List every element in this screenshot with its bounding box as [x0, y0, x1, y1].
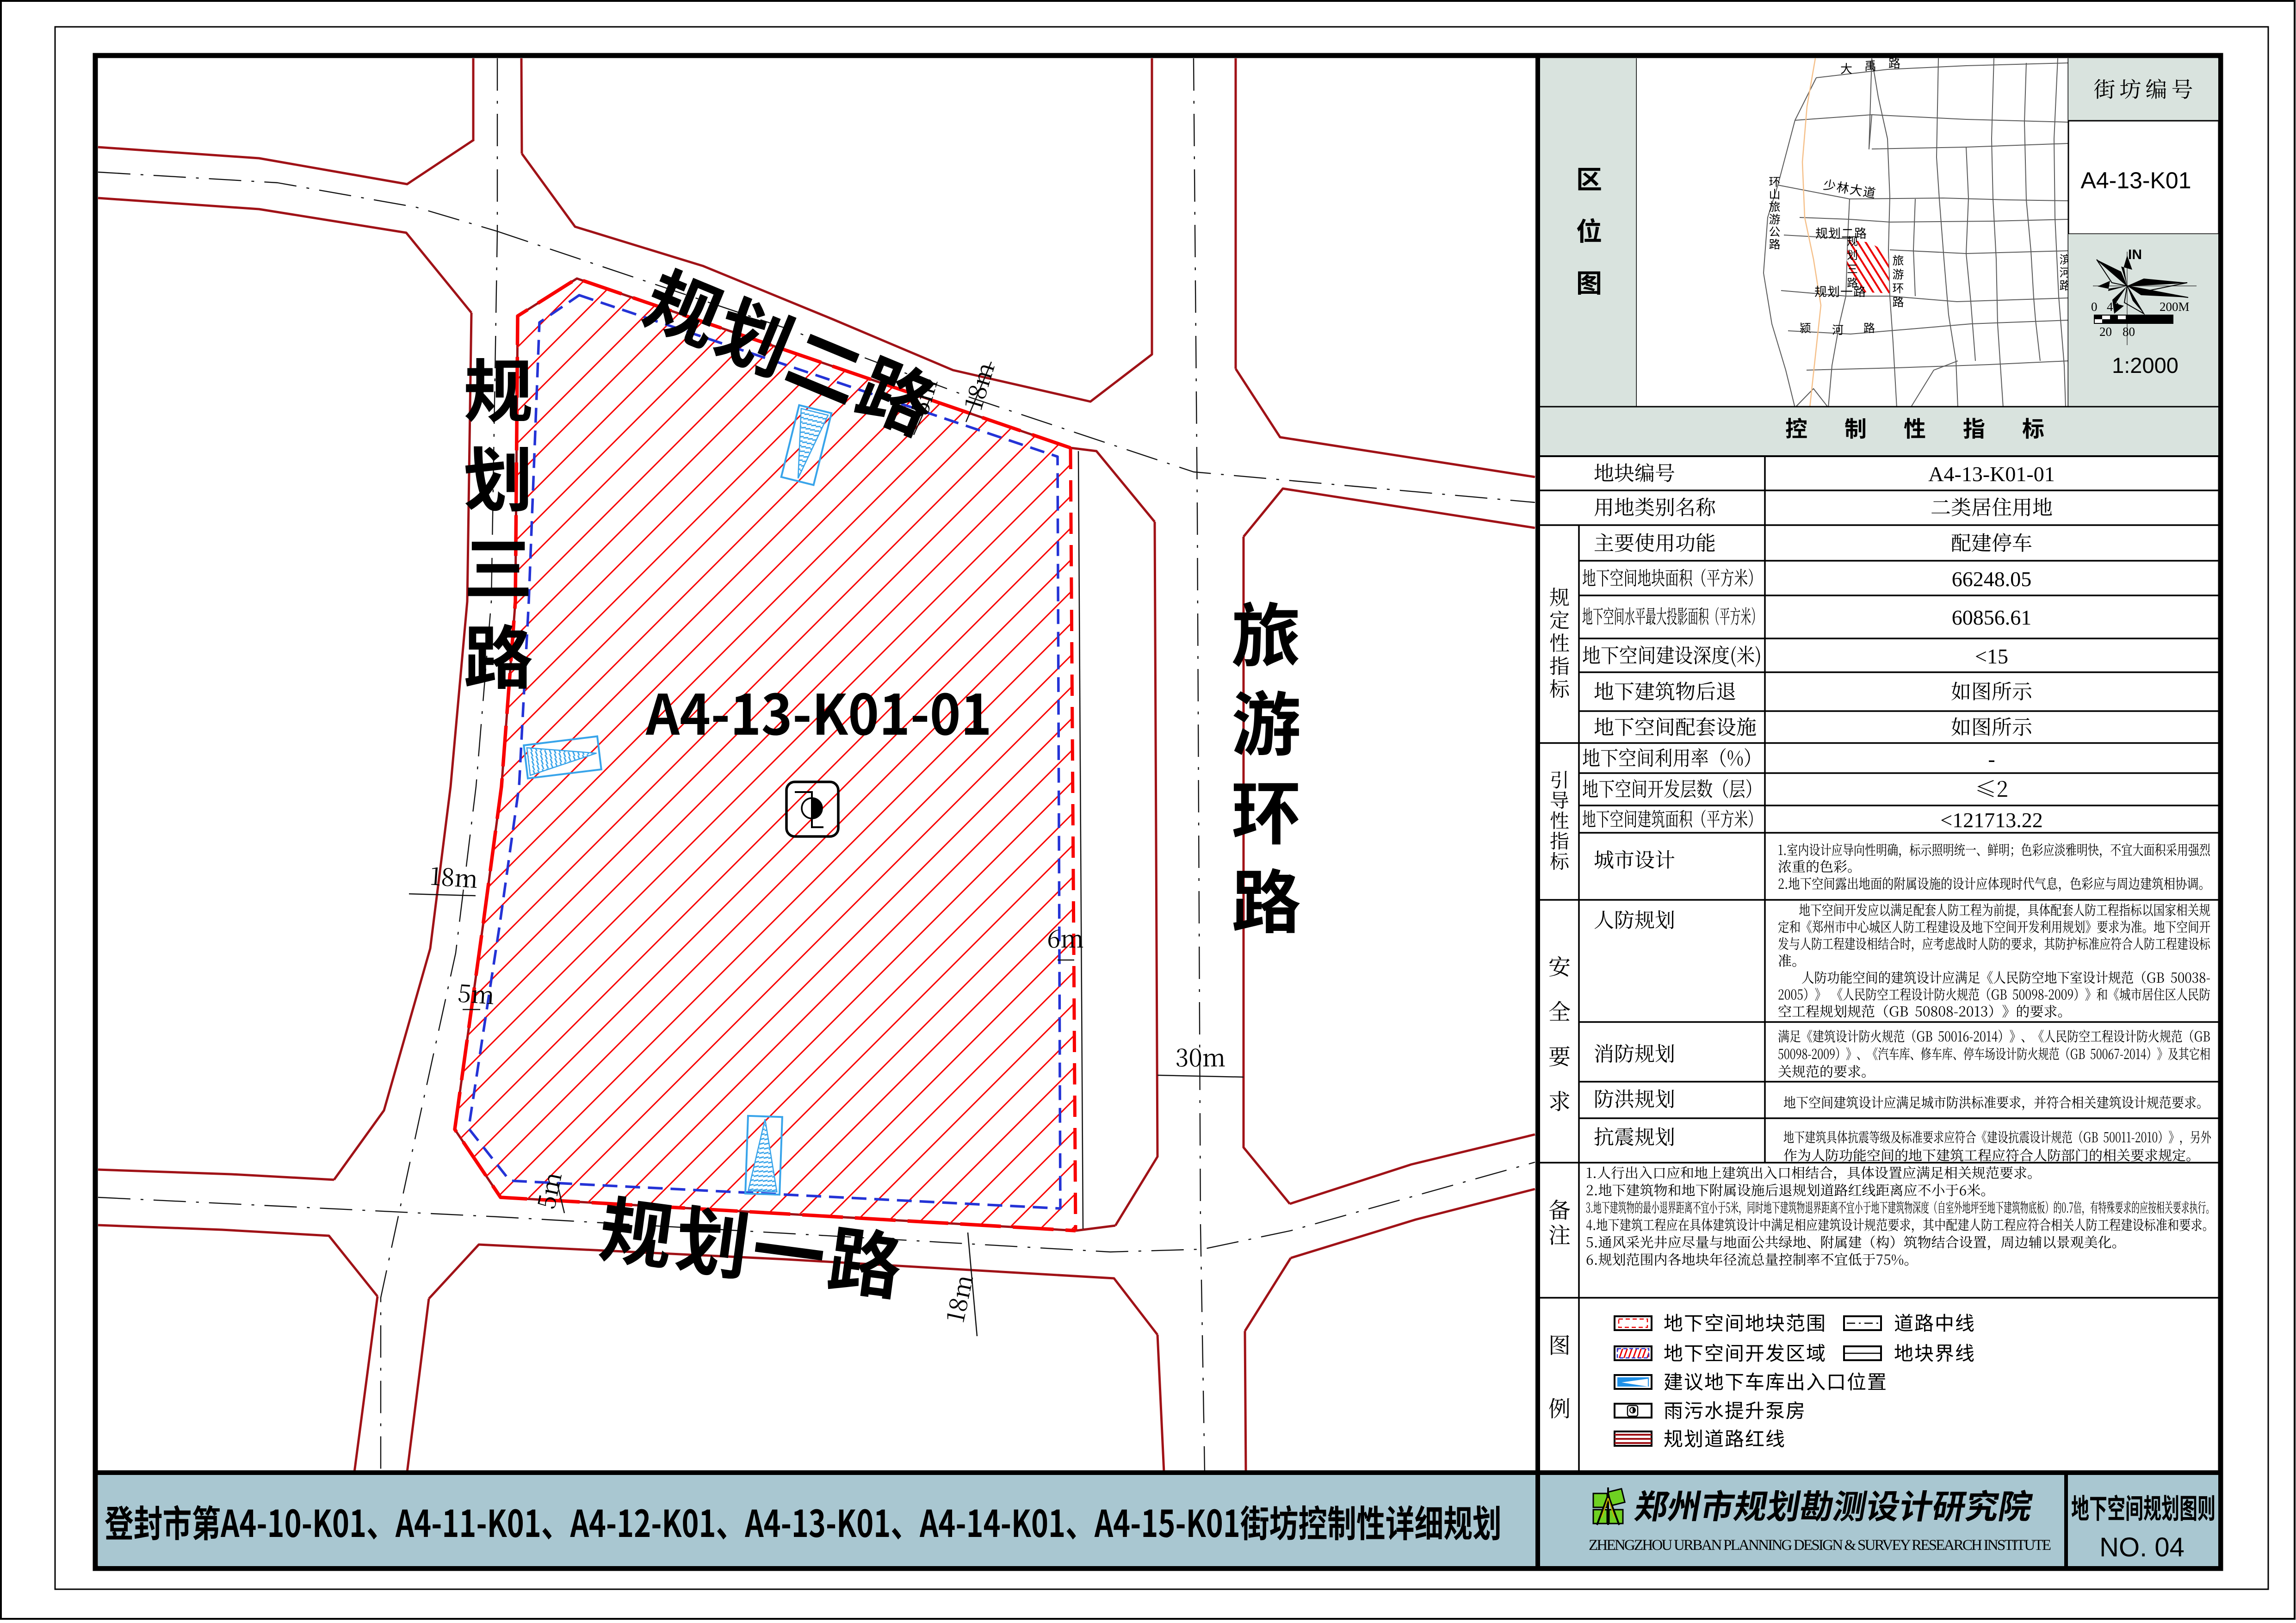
svg-text:0: 0 [2091, 300, 2098, 314]
svg-text:66248.05: 66248.05 [1952, 567, 2032, 591]
svg-text:200M: 200M [2160, 300, 2190, 314]
svg-text:1:2000: 1:2000 [2112, 353, 2178, 378]
svg-text:80: 80 [2123, 325, 2135, 339]
svg-text:-: - [1988, 747, 1995, 771]
svg-text:40: 40 [2107, 300, 2119, 314]
svg-text:ZHENGZHOU URBAN PLANNING DESIG: ZHENGZHOU URBAN PLANNING DESIGN & SURVEY… [1589, 1537, 2051, 1554]
svg-text:<15: <15 [1975, 644, 2008, 668]
svg-text:60856.61: 60856.61 [1952, 606, 2032, 629]
svg-text:20: 20 [2099, 325, 2112, 339]
svg-text:NO. 04: NO. 04 [2099, 1532, 2185, 1562]
svg-text:IN: IN [2128, 247, 2142, 262]
svg-text:A4-13-K01-01: A4-13-K01-01 [1928, 462, 2055, 486]
svg-text:<121713.22: <121713.22 [1940, 808, 2042, 832]
svg-text:A4-13-K01: A4-13-K01 [2080, 167, 2191, 193]
